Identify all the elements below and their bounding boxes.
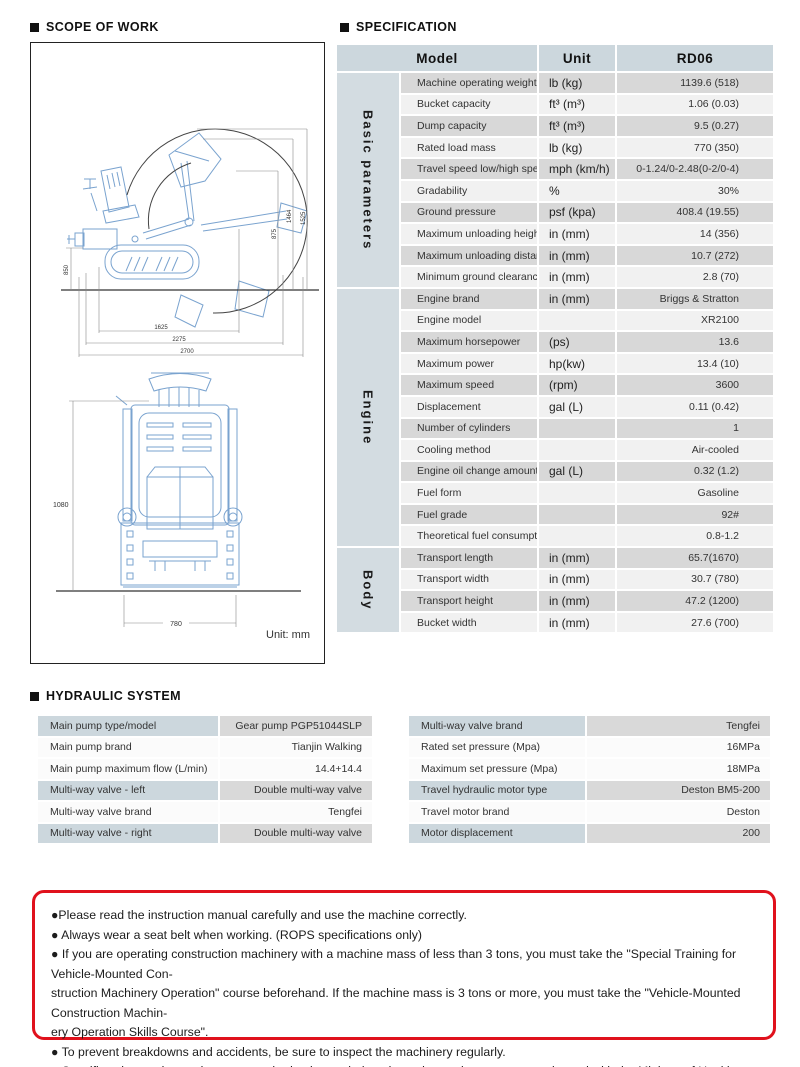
spec-attr-cell: Engine brand — [401, 289, 537, 309]
spec-value-cell: 0.11 (0.42) — [617, 397, 773, 417]
spec-unit-cell: in (mm) — [539, 591, 615, 611]
spec-unit-cell: ft³ (m³) — [539, 95, 615, 115]
spec-row: Bucket widthin (mm)27.6 (700) — [337, 613, 773, 633]
hydraulic-label-cell: Travel hydraulic motor type — [409, 781, 585, 801]
hydraulic-row: Main pump maximum flow (L/min)14.4+14.4 — [38, 759, 372, 779]
spec-row: Maximum powerhp(kw)13.4 (10) — [337, 354, 773, 374]
spec-value-cell: 0-1.24/0-2.48(0-2/0-4) — [617, 159, 773, 179]
spec-attr-cell: Maximum power — [401, 354, 537, 374]
spec-row: Gradability%30% — [337, 181, 773, 201]
spec-row: Engine oil change amountgal (L)0.32 (1.2… — [337, 462, 773, 482]
spec-unit-cell: in (mm) — [539, 548, 615, 568]
scope-of-work-drawing-box: 850 875 1464 1525 1625 2275 2700 — [30, 42, 325, 664]
spec-attr-cell: Rated load mass — [401, 138, 537, 158]
hydraulic-value-cell: Tengfei — [587, 716, 770, 736]
spec-row: Maximum unloading distancein (mm)10.7 (2… — [337, 246, 773, 266]
hydraulic-row: Multi-way valve brandTengfei — [38, 802, 372, 822]
spec-value-cell: 14 (356) — [617, 224, 773, 244]
dim-label-875: 875 — [272, 228, 278, 239]
hydraulic-label-cell: Multi-way valve - right — [38, 824, 218, 844]
spec-value-cell: 0.8-1.2 — [617, 526, 773, 546]
spec-value-cell: Air-cooled — [617, 440, 773, 460]
spec-attr-cell: Displacement — [401, 397, 537, 417]
dim-label-1080: 1080 — [53, 502, 69, 509]
spec-value-cell: 47.2 (1200) — [617, 591, 773, 611]
unit-note: Unit: mm — [266, 629, 310, 641]
spec-unit-cell: in (mm) — [539, 267, 615, 287]
safety-notes-text: ●Please read the instruction manual care… — [51, 906, 757, 1067]
hydraulic-label-cell: Multi-way valve - left — [38, 781, 218, 801]
hydraulic-label-cell: Main pump brand — [38, 738, 218, 758]
spec-sheet-page: SCOPE OF WORK — [0, 0, 800, 1067]
hydraulic-label-cell: Multi-way valve brand — [409, 716, 585, 736]
scope-of-work-title: SCOPE OF WORK — [30, 20, 159, 34]
spec-row: Cooling methodAir-cooled — [337, 440, 773, 460]
spec-section-label: Body — [337, 548, 399, 632]
spec-value-cell: 1.06 (0.03) — [617, 95, 773, 115]
spec-unit-cell: gal (L) — [539, 462, 615, 482]
safety-note-line: ● To prevent breakdowns and accidents, b… — [51, 1043, 757, 1063]
spec-row: Minimum ground clearancein (mm)2.8 (70) — [337, 267, 773, 287]
hydraulic-value-cell: Gear pump PGP51044SLP — [220, 716, 372, 736]
spec-row: Number of cylinders1 — [337, 419, 773, 439]
spec-row: EngineEngine brandin (mm)Briggs & Stratt… — [337, 289, 773, 309]
spec-row: Travel speed low/high speedmph (km/h)0-1… — [337, 159, 773, 179]
spec-attr-cell: Fuel grade — [401, 505, 537, 525]
spec-section-label: Engine — [337, 289, 399, 546]
dim-label-1464: 1464 — [287, 209, 293, 223]
spec-unit-cell — [539, 526, 615, 546]
dim-label-2700: 2700 — [180, 349, 194, 355]
hydraulic-value-cell: Double multi-way valve — [220, 824, 372, 844]
spec-value-cell: 27.6 (700) — [617, 613, 773, 633]
hydraulic-value-cell: 18MPa — [587, 759, 770, 779]
hydraulic-row: Maximum set pressure (Mpa)18MPa — [409, 759, 770, 779]
spec-attr-cell: Transport length — [401, 548, 537, 568]
hydraulic-value-cell: 200 — [587, 824, 770, 844]
hydraulic-label-cell: Travel motor brand — [409, 802, 585, 822]
spec-attr-cell: Travel speed low/high speed — [401, 159, 537, 179]
machine-side-view-drawing: 850 875 1464 1525 1625 2275 2700 — [31, 43, 324, 365]
spec-attr-cell: Engine oil change amount — [401, 462, 537, 482]
dim-label-850: 850 — [64, 264, 70, 275]
hydraulic-row: Rated set pressure (Mpa)16MPa — [409, 738, 770, 758]
hydraulic-row: Motor displacement200 — [409, 824, 770, 844]
safety-note-line: ● Always wear a seat belt when working. … — [51, 926, 757, 946]
hydraulic-value-cell: Tianjin Walking — [220, 738, 372, 758]
spec-value-cell: 3600 — [617, 375, 773, 395]
spec-value-cell: XR2100 — [617, 311, 773, 331]
safety-note-line: ●Please read the instruction manual care… — [51, 906, 757, 926]
hydraulic-row: Main pump brandTianjin Walking — [38, 738, 372, 758]
black-square-icon — [340, 23, 349, 32]
spec-value-cell: 9.5 (0.27) — [617, 116, 773, 136]
spec-row: Maximum horsepower(ps)13.6 — [337, 332, 773, 352]
spec-header-value: RD06 — [617, 45, 773, 71]
hydraulic-system-title-text: HYDRAULIC SYSTEM — [46, 689, 181, 703]
dim-label-2275: 2275 — [172, 337, 186, 343]
dim-label-780: 780 — [170, 621, 182, 628]
spec-attr-cell: Cooling method — [401, 440, 537, 460]
spec-attr-cell: Machine operating weight — [401, 73, 537, 93]
hydraulic-row: Multi-way valve brandTengfei — [409, 716, 770, 736]
hydraulic-value-cell: Deston — [587, 802, 770, 822]
hydraulic-label-cell: Multi-way valve brand — [38, 802, 218, 822]
spec-row: Engine modelXR2100 — [337, 311, 773, 331]
hydraulic-label-cell: Main pump type/model — [38, 716, 218, 736]
spec-unit-cell: % — [539, 181, 615, 201]
spec-value-cell: 0.32 (1.2) — [617, 462, 773, 482]
spec-unit-cell: in (mm) — [539, 224, 615, 244]
hydraulic-row: Multi-way valve - rightDouble multi-way … — [38, 824, 372, 844]
spec-attr-cell: Transport width — [401, 570, 537, 590]
spec-unit-cell — [539, 419, 615, 439]
specification-table: Model Unit RD06 Basic parametersMachine … — [335, 43, 775, 634]
hydraulic-value-cell: 16MPa — [587, 738, 770, 758]
spec-attr-cell: Minimum ground clearance — [401, 267, 537, 287]
hydraulic-label-cell: Motor displacement — [409, 824, 585, 844]
spec-row: Transport heightin (mm)47.2 (1200) — [337, 591, 773, 611]
safety-note-line: ery Operation Skills Course". — [51, 1023, 757, 1043]
specification-title-text: SPECIFICATION — [356, 20, 457, 34]
spec-value-cell: 408.4 (19.55) — [617, 203, 773, 223]
spec-attr-cell: Maximum unloading height — [401, 224, 537, 244]
specification-title: SPECIFICATION — [340, 20, 457, 34]
spec-row: Rated load masslb (kg)770 (350) — [337, 138, 773, 158]
spec-value-cell: 10.7 (272) — [617, 246, 773, 266]
hydraulic-value-cell: Tengfei — [220, 802, 372, 822]
spec-unit-cell — [539, 483, 615, 503]
spec-row: Dump capacityft³ (m³)9.5 (0.27) — [337, 116, 773, 136]
hydraulic-label-cell: Rated set pressure (Mpa) — [409, 738, 585, 758]
spec-attr-cell: Ground pressure — [401, 203, 537, 223]
spec-attr-cell: Theoretical fuel consumption — [401, 526, 537, 546]
safety-note-line: ● If you are operating construction mach… — [51, 945, 757, 984]
spec-unit-cell: gal (L) — [539, 397, 615, 417]
spec-row: Displacementgal (L)0.11 (0.42) — [337, 397, 773, 417]
spec-value-cell: Gasoline — [617, 483, 773, 503]
hydraulic-row: Travel motor brandDeston — [409, 802, 770, 822]
spec-value-cell: 1139.6 (518) — [617, 73, 773, 93]
black-square-icon — [30, 23, 39, 32]
spec-value-cell: 770 (350) — [617, 138, 773, 158]
spec-section-label: Basic parameters — [337, 73, 399, 287]
spec-row: Maximum speed(rpm)3600 — [337, 375, 773, 395]
spec-attr-cell: Maximum unloading distance — [401, 246, 537, 266]
spec-unit-cell — [539, 311, 615, 331]
spec-unit-cell — [539, 505, 615, 525]
spec-attr-cell: Number of cylinders — [401, 419, 537, 439]
dim-label-1625: 1625 — [154, 325, 168, 331]
spec-row: Theoretical fuel consumption0.8-1.2 — [337, 526, 773, 546]
spec-value-cell: 1 — [617, 419, 773, 439]
spec-attr-cell: Transport height — [401, 591, 537, 611]
scope-of-work-title-text: SCOPE OF WORK — [46, 20, 159, 34]
spec-row: Ground pressurepsf (kpa)408.4 (19.55) — [337, 203, 773, 223]
spec-value-cell: 30% — [617, 181, 773, 201]
spec-unit-cell: in (mm) — [539, 246, 615, 266]
spec-attr-cell: Gradability — [401, 181, 537, 201]
spec-row: Maximum unloading heightin (mm)14 (356) — [337, 224, 773, 244]
safety-note-line: struction Machinery Operation" course be… — [51, 984, 757, 1023]
spec-unit-cell: (rpm) — [539, 375, 615, 395]
spec-attr-cell: Maximum speed — [401, 375, 537, 395]
hydraulic-value-cell: Double multi-way valve — [220, 781, 372, 801]
spec-unit-cell: hp(kw) — [539, 354, 615, 374]
spec-value-cell: Briggs & Stratton — [617, 289, 773, 309]
spec-unit-cell: ft³ (m³) — [539, 116, 615, 136]
hydraulic-label-cell: Main pump maximum flow (L/min) — [38, 759, 218, 779]
spec-row: BodyTransport lengthin (mm)65.7(1670) — [337, 548, 773, 568]
spec-unit-cell: psf (kpa) — [539, 203, 615, 223]
spec-header-row: Model Unit RD06 — [337, 45, 773, 71]
spec-unit-cell: in (mm) — [539, 289, 615, 309]
spec-attr-cell: Maximum horsepower — [401, 332, 537, 352]
spec-attr-cell: Bucket width — [401, 613, 537, 633]
spec-value-cell: 92# — [617, 505, 773, 525]
dim-label-1525: 1525 — [301, 211, 307, 225]
hydraulic-value-cell: 14.4+14.4 — [220, 759, 372, 779]
hydraulic-system-title: HYDRAULIC SYSTEM — [30, 689, 181, 703]
spec-attr-cell: Bucket capacity — [401, 95, 537, 115]
spec-row: Fuel grade92# — [337, 505, 773, 525]
hydraulic-value-cell: Deston BM5-200 — [587, 781, 770, 801]
hydraulic-label-cell: Maximum set pressure (Mpa) — [409, 759, 585, 779]
spec-row: Transport widthin (mm)30.7 (780) — [337, 570, 773, 590]
spec-header-unit: Unit — [539, 45, 615, 71]
spec-unit-cell: in (mm) — [539, 570, 615, 590]
spec-header-model: Model — [337, 45, 537, 71]
safety-note-line: ● Specific voluntary inspections are req… — [51, 1062, 757, 1067]
spec-unit-cell — [539, 440, 615, 460]
spec-row: Fuel formGasoline — [337, 483, 773, 503]
spec-value-cell: 13.6 — [617, 332, 773, 352]
spec-attr-cell: Engine model — [401, 311, 537, 331]
hydraulic-row: Main pump type/modelGear pump PGP51044SL… — [38, 716, 372, 736]
spec-attr-cell: Fuel form — [401, 483, 537, 503]
safety-notes-box: ●Please read the instruction manual care… — [32, 890, 776, 1040]
spec-attr-cell: Dump capacity — [401, 116, 537, 136]
spec-value-cell: 65.7(1670) — [617, 548, 773, 568]
spec-unit-cell: mph (km/h) — [539, 159, 615, 179]
hydraulic-right-table: Multi-way valve brandTengfeiRated set pr… — [407, 714, 772, 845]
spec-unit-cell: lb (kg) — [539, 73, 615, 93]
spec-unit-cell: lb (kg) — [539, 138, 615, 158]
hydraulic-row: Multi-way valve - leftDouble multi-way v… — [38, 781, 372, 801]
spec-value-cell: 13.4 (10) — [617, 354, 773, 374]
machine-front-view-drawing: 1080 780 — [31, 365, 324, 637]
spec-value-cell: 2.8 (70) — [617, 267, 773, 287]
hydraulic-left-table: Main pump type/modelGear pump PGP51044SL… — [36, 714, 374, 845]
black-square-icon — [30, 692, 39, 701]
spec-unit-cell: in (mm) — [539, 613, 615, 633]
spec-row: Basic parametersMachine operating weight… — [337, 73, 773, 93]
spec-row: Bucket capacityft³ (m³)1.06 (0.03) — [337, 95, 773, 115]
spec-value-cell: 30.7 (780) — [617, 570, 773, 590]
spec-unit-cell: (ps) — [539, 332, 615, 352]
hydraulic-row: Travel hydraulic motor typeDeston BM5-20… — [409, 781, 770, 801]
